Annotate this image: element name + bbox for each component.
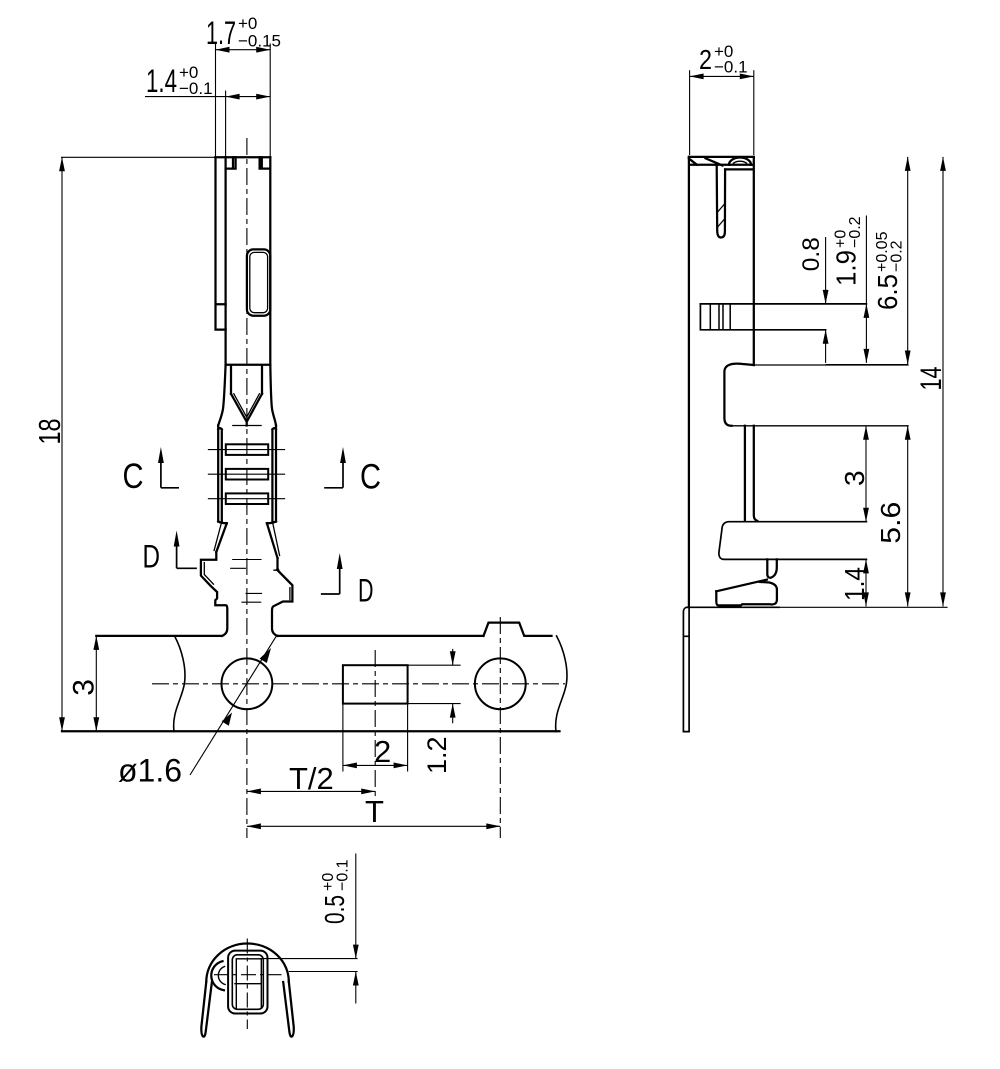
svg-text:2: 2 bbox=[699, 44, 712, 75]
svg-text:−0.2: −0.2 bbox=[889, 240, 906, 272]
svg-text:T/2: T/2 bbox=[289, 761, 334, 796]
svg-text:D: D bbox=[358, 573, 374, 609]
svg-text:0.5: 0.5 bbox=[319, 895, 350, 924]
svg-text:−0.1: −0.1 bbox=[334, 859, 351, 891]
svg-text:D: D bbox=[143, 538, 161, 574]
svg-text:5.6: 5.6 bbox=[875, 502, 906, 544]
svg-text:−0.15: −0.15 bbox=[238, 32, 281, 51]
svg-text:14: 14 bbox=[915, 367, 948, 391]
svg-text:1.7: 1.7 bbox=[206, 15, 236, 51]
svg-text:1.9: 1.9 bbox=[831, 250, 862, 286]
svg-text:1.2: 1.2 bbox=[422, 736, 452, 774]
svg-text:−0.2: −0.2 bbox=[847, 216, 864, 248]
svg-text:3: 3 bbox=[839, 470, 870, 486]
svg-text:1.4: 1.4 bbox=[839, 567, 870, 601]
svg-text:ø1.6: ø1.6 bbox=[118, 753, 182, 789]
svg-text:6.5: 6.5 bbox=[872, 274, 903, 310]
svg-text:18: 18 bbox=[32, 419, 67, 445]
svg-text:3: 3 bbox=[68, 679, 101, 696]
svg-text:−0.1: −0.1 bbox=[714, 58, 748, 77]
svg-text:1.4: 1.4 bbox=[146, 63, 177, 99]
svg-text:+0: +0 bbox=[238, 14, 257, 33]
svg-text:C: C bbox=[123, 457, 144, 496]
svg-text:0.8: 0.8 bbox=[798, 237, 825, 271]
svg-text:C: C bbox=[360, 457, 381, 496]
svg-text:−0.1: −0.1 bbox=[179, 79, 213, 98]
svg-text:2: 2 bbox=[374, 734, 391, 769]
svg-text:T: T bbox=[365, 794, 384, 829]
